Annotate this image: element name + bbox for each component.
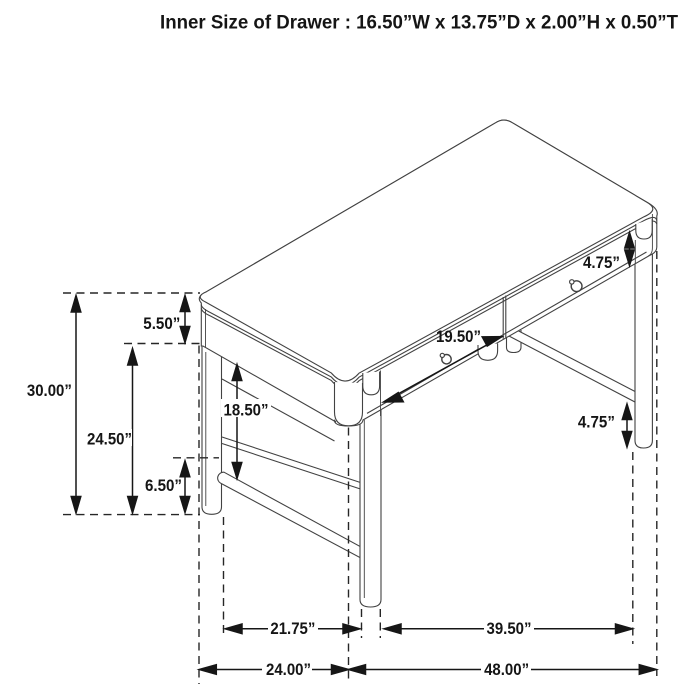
svg-text:24.00”: 24.00”: [266, 660, 311, 679]
svg-text:4.75”: 4.75”: [583, 253, 620, 272]
svg-text:Inner Size of Drawer : 16.50”W: Inner Size of Drawer : 16.50”W x 13.75”D…: [160, 13, 678, 34]
svg-text:6.50”: 6.50”: [145, 476, 182, 495]
svg-text:48.00”: 48.00”: [484, 660, 529, 679]
svg-text:5.50”: 5.50”: [143, 314, 180, 333]
svg-text:39.50”: 39.50”: [487, 619, 532, 638]
svg-text:30.00”: 30.00”: [27, 381, 72, 400]
svg-text:18.50”: 18.50”: [224, 401, 269, 420]
svg-text:21.75”: 21.75”: [270, 619, 315, 638]
svg-text:4.75”: 4.75”: [578, 413, 615, 432]
svg-text:24.50”: 24.50”: [87, 430, 132, 449]
svg-text:19.50”: 19.50”: [436, 327, 481, 346]
